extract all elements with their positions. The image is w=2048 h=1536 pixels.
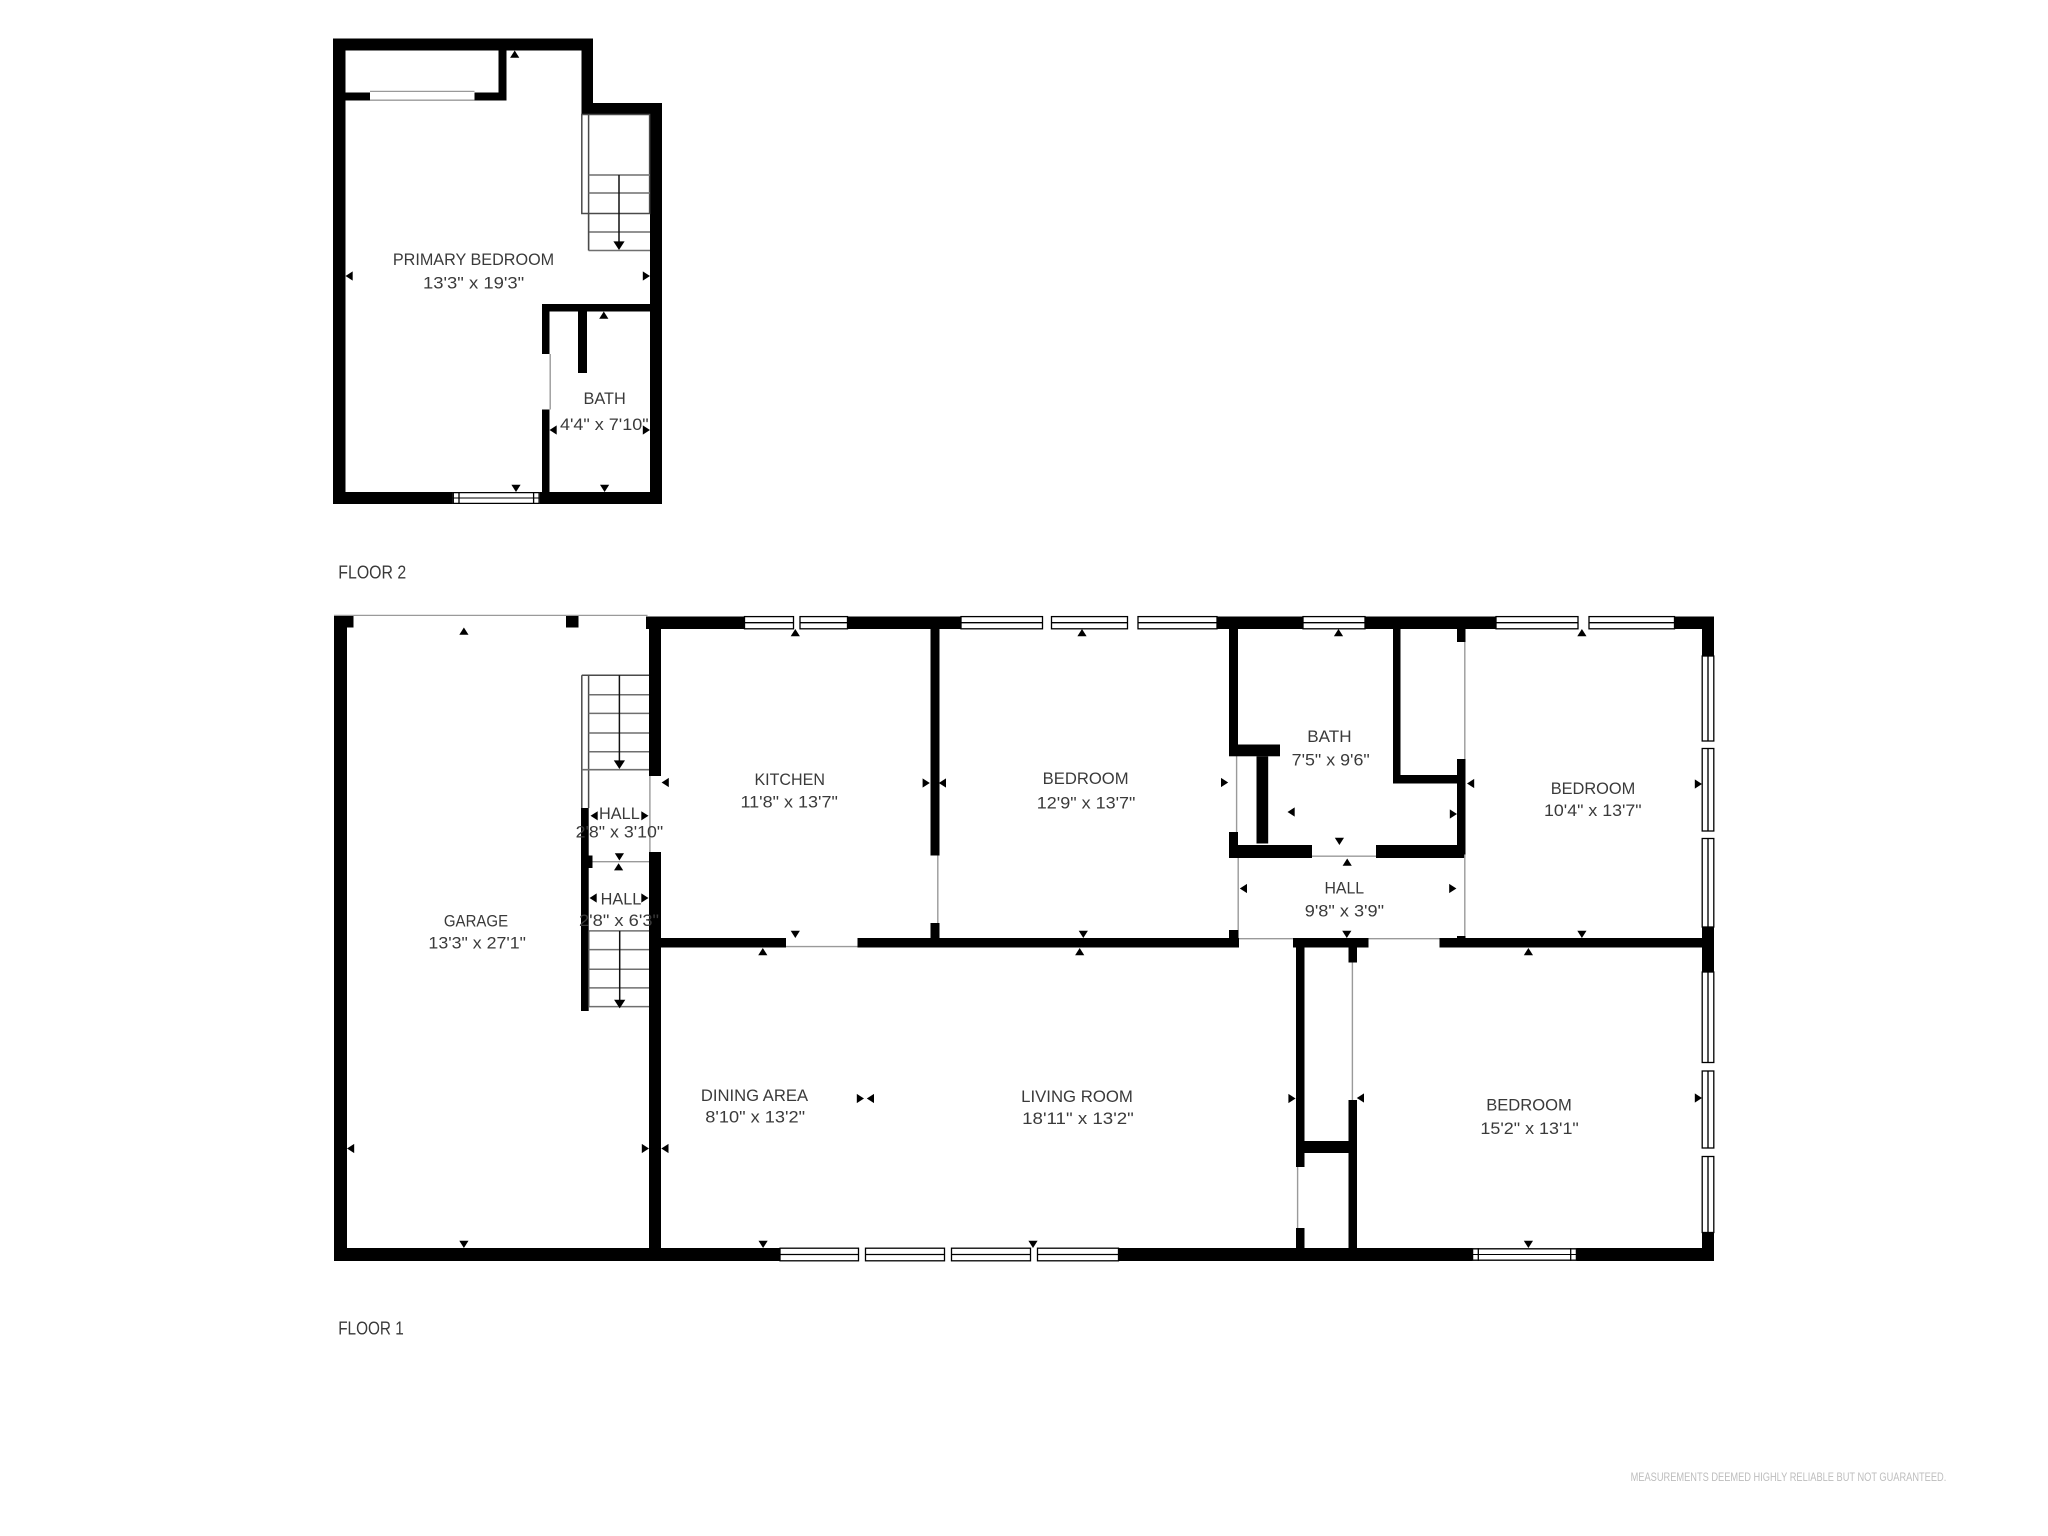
svg-text:LIVING ROOM: LIVING ROOM bbox=[1021, 1087, 1133, 1106]
svg-text:7'5" x 9'6": 7'5" x 9'6" bbox=[1292, 750, 1370, 769]
svg-text:11'8" x 13'7": 11'8" x 13'7" bbox=[741, 792, 838, 811]
svg-text:KITCHEN: KITCHEN bbox=[754, 770, 825, 789]
svg-text:HALL: HALL bbox=[601, 889, 642, 908]
svg-text:BEDROOM: BEDROOM bbox=[1551, 779, 1636, 798]
svg-text:PRIMARY BEDROOM: PRIMARY BEDROOM bbox=[393, 250, 554, 269]
svg-text:9'8" x 3'9": 9'8" x 3'9" bbox=[1305, 901, 1384, 920]
svg-text:BATH: BATH bbox=[583, 389, 625, 408]
svg-text:BEDROOM: BEDROOM bbox=[1043, 769, 1129, 788]
svg-text:GARAGE: GARAGE bbox=[444, 912, 508, 931]
svg-text:DINING AREA: DINING AREA bbox=[701, 1086, 809, 1105]
svg-text:13'3" x 27'1": 13'3" x 27'1" bbox=[428, 934, 526, 953]
svg-text:13'3" x 19'3": 13'3" x 19'3" bbox=[423, 274, 524, 293]
svg-text:10'4" x 13'7": 10'4" x 13'7" bbox=[1544, 801, 1642, 820]
svg-text:FLOOR 1: FLOOR 1 bbox=[338, 1318, 404, 1339]
svg-text:8'10" x 13'2": 8'10" x 13'2" bbox=[705, 1108, 805, 1127]
svg-text:2'8" x 6'3": 2'8" x 6'3" bbox=[579, 911, 659, 930]
svg-text:FLOOR 2: FLOOR 2 bbox=[338, 561, 406, 582]
svg-text:BATH: BATH bbox=[1307, 727, 1351, 746]
svg-text:HALL: HALL bbox=[599, 804, 640, 823]
svg-text:2'8" x 3'10": 2'8" x 3'10" bbox=[576, 823, 664, 842]
svg-text:15'2" x 13'1": 15'2" x 13'1" bbox=[1480, 1119, 1578, 1138]
svg-text:HALL: HALL bbox=[1324, 879, 1364, 898]
svg-text:4'4" x 7'10": 4'4" x 7'10" bbox=[560, 415, 649, 434]
svg-text:BEDROOM: BEDROOM bbox=[1486, 1096, 1572, 1115]
svg-text:12'9" x 13'7": 12'9" x 13'7" bbox=[1037, 794, 1136, 813]
svg-text:18'11" x 13'2": 18'11" x 13'2" bbox=[1022, 1109, 1134, 1128]
svg-text:MEASUREMENTS DEEMED HIGHLY REL: MEASUREMENTS DEEMED HIGHLY RELIABLE BUT … bbox=[1631, 1470, 1947, 1484]
